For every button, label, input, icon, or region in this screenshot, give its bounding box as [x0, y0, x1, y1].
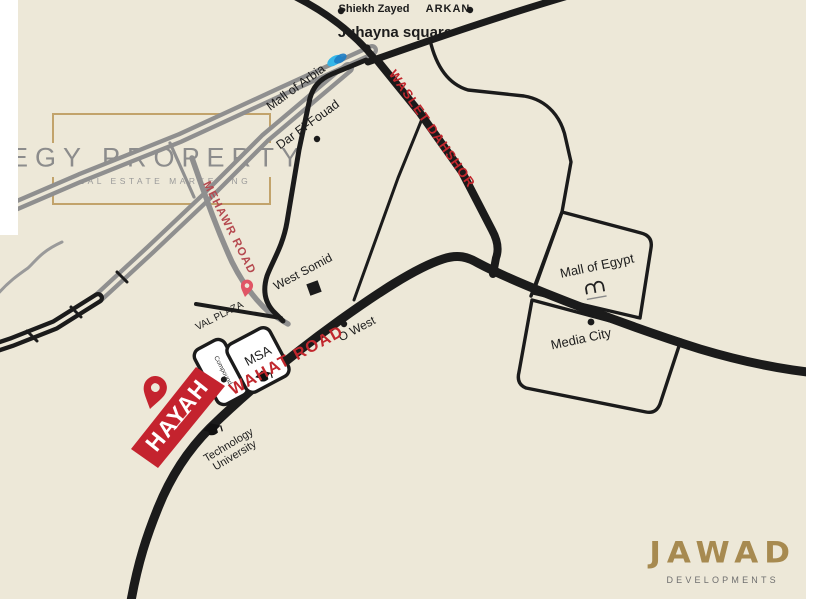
left-edge-strip: [0, 0, 18, 235]
mall-of-egypt-logo-icon: [584, 281, 606, 300]
map-canvas: EGY PROPERTY REAL ESTATE MARKETING: [0, 0, 824, 599]
gray-connector-road: [170, 143, 194, 197]
jawad-developments-logo: JAWAD DEVELOPMENTS: [649, 535, 796, 585]
right-edge-strip: [806, 0, 824, 599]
media-city-marker-dot: [588, 319, 595, 326]
developer-name: JAWAD: [649, 536, 796, 570]
place-label-juhayna-square: Juhayna square: [338, 25, 452, 41]
west-somid-building-square: [306, 280, 321, 295]
winding-branch-road: [0, 242, 62, 296]
place-label-shiekh-zayed: Shiekh Zayed: [339, 4, 410, 16]
juhayna-marker-dot: [363, 44, 370, 51]
developer-tagline: DEVELOPMENTS: [649, 575, 796, 585]
dar-el-fouad-marker-dot: [314, 136, 320, 142]
place-label-arkan: ARKAN: [426, 4, 471, 16]
hayah-location-pin-icon: [139, 374, 170, 412]
